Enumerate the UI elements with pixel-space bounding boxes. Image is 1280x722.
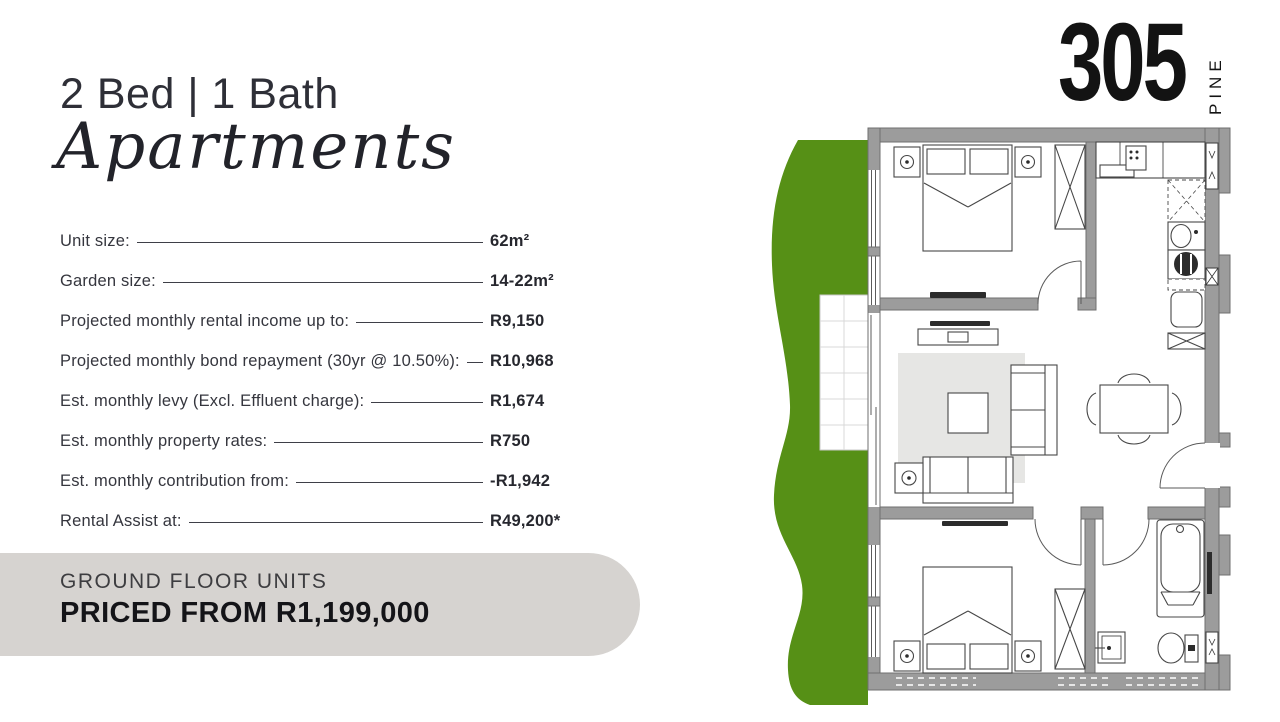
- brand-number: 305: [1058, 16, 1185, 111]
- dining-table: [1100, 385, 1168, 433]
- spec-row: Est. monthly property rates: R750: [60, 421, 622, 461]
- spec-value: R10,968: [490, 352, 622, 371]
- fridge: [1171, 292, 1202, 327]
- bedroom1-window: [869, 170, 880, 305]
- spec-value: 62m²: [490, 232, 622, 251]
- spec-list: Unit size: 62m² Garden size: 14-22m² Pro…: [60, 221, 622, 541]
- spec-label: Est. monthly property rates:: [60, 432, 267, 451]
- price-banner-price: PRICED FROM R1,199,000: [60, 597, 640, 630]
- tv-icon: [930, 292, 986, 298]
- price-banner: GROUND FLOOR UNITS PRICED FROM R1,199,00…: [0, 553, 640, 656]
- spec-label: Est. monthly contribution from:: [60, 472, 289, 491]
- dining-area: [1087, 374, 1181, 444]
- leader-line: [371, 402, 483, 403]
- spec-label: Garden size:: [60, 272, 156, 291]
- spec-row: Garden size: 14-22m²: [60, 261, 622, 301]
- spec-label: Unit size:: [60, 232, 130, 251]
- leader-line: [296, 482, 483, 483]
- leader-line: [356, 322, 483, 323]
- kitchen-window: [1206, 143, 1218, 189]
- pillow: [970, 644, 1008, 669]
- leader-line: [467, 362, 483, 363]
- pillow: [970, 149, 1008, 174]
- spec-value: -R1,942: [490, 472, 622, 491]
- leader-line: [189, 522, 483, 523]
- spec-label: Projected monthly bond repayment (30yr @…: [60, 352, 460, 371]
- spec-row: Est. monthly contribution from: -R1,942: [60, 461, 622, 501]
- toilet: [1158, 633, 1184, 663]
- spec-row: Est. monthly levy (Excl. Effluent charge…: [60, 381, 622, 421]
- spec-label: Projected monthly rental income up to:: [60, 312, 349, 331]
- coffee-table: [948, 393, 988, 433]
- spec-value: R9,150: [490, 312, 622, 331]
- floor-plan: [768, 115, 1240, 710]
- brand-name: PINE: [1206, 33, 1226, 115]
- tv-icon: [942, 521, 1008, 526]
- spec-row: Unit size: 62m²: [60, 221, 622, 261]
- tv-console-center: [948, 332, 968, 342]
- wc-window: [1206, 632, 1218, 663]
- page-subtitle-script: Apartments: [56, 110, 456, 184]
- flyer-page: 2 Bed | 1 Bath Apartments 305 PINE Unit …: [0, 0, 1280, 722]
- patio-paving: [820, 295, 868, 450]
- spec-row: Rental Assist at: R49,200*: [60, 501, 622, 541]
- leader-line: [163, 282, 483, 283]
- leader-line: [274, 442, 483, 443]
- price-banner-category: GROUND FLOOR UNITS: [60, 570, 640, 594]
- garden-area: [772, 140, 868, 705]
- spec-value: R1,674: [490, 392, 622, 411]
- spec-value: R750: [490, 432, 622, 451]
- spec-label: Est. monthly levy (Excl. Effluent charge…: [60, 392, 364, 411]
- pillow: [927, 149, 965, 174]
- spec-value: 14-22m²: [490, 272, 622, 291]
- leader-line: [137, 242, 483, 243]
- spec-row: Projected monthly rental income up to: R…: [60, 301, 622, 341]
- spec-value: R49,200*: [490, 512, 622, 531]
- bathroom-window: [1207, 552, 1212, 594]
- spec-row: Projected monthly bond repayment (30yr @…: [60, 341, 622, 381]
- pillow: [927, 644, 965, 669]
- cabinet: [1168, 279, 1205, 290]
- spec-label: Rental Assist at:: [60, 512, 182, 531]
- tv-icon: [930, 321, 990, 326]
- patio-sliding-door: [869, 313, 880, 507]
